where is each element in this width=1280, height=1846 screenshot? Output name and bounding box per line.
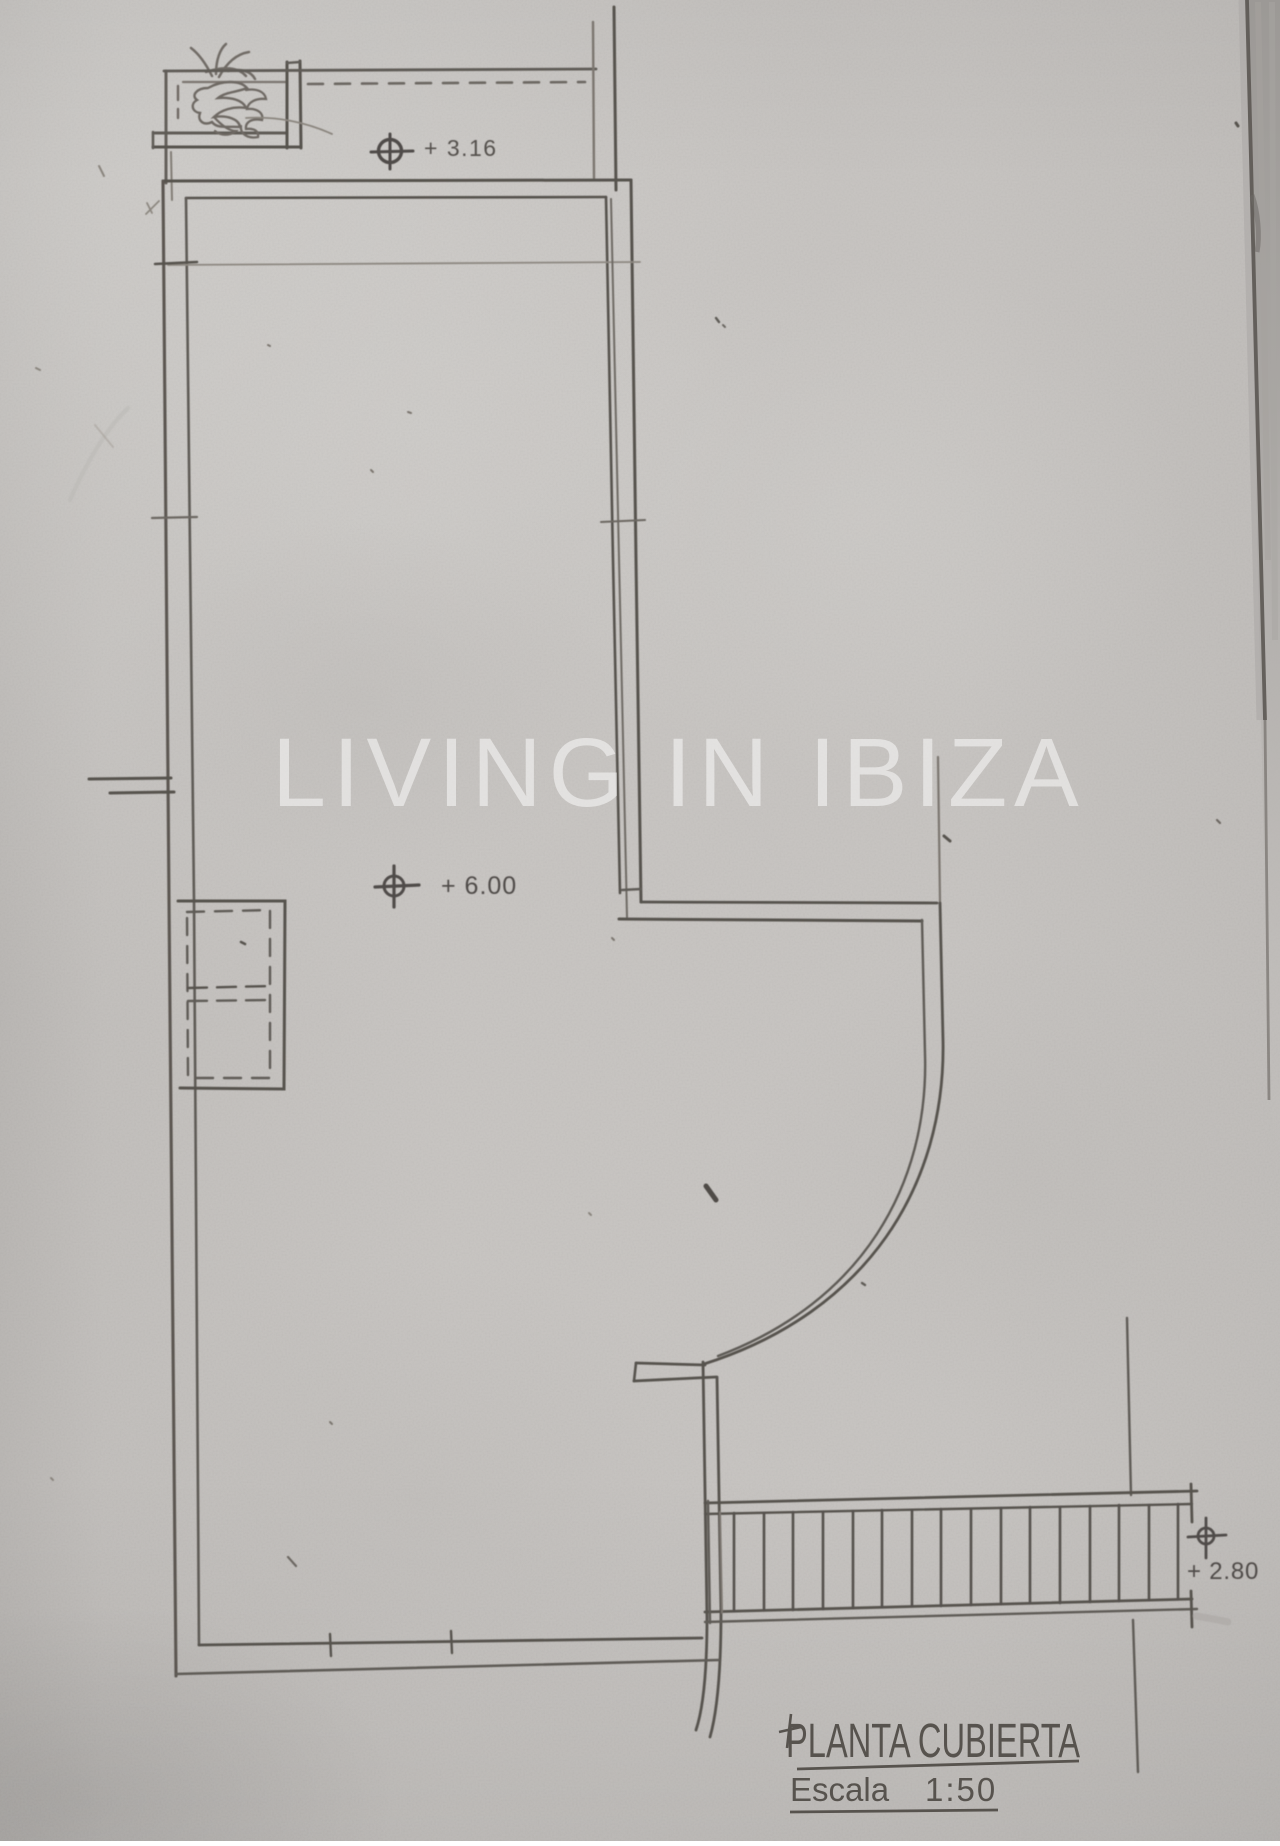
svg-text:PLANTA CUBIERTA: PLANTA CUBIERTA — [786, 1715, 1080, 1768]
svg-text:+ 3.16: + 3.16 — [424, 135, 498, 161]
svg-text:+ 2.80: + 2.80 — [1187, 1558, 1259, 1585]
svg-text:LIVING IN IBIZA: LIVING IN IBIZA — [272, 718, 1086, 827]
svg-text:+ 6.00: + 6.00 — [441, 872, 517, 900]
